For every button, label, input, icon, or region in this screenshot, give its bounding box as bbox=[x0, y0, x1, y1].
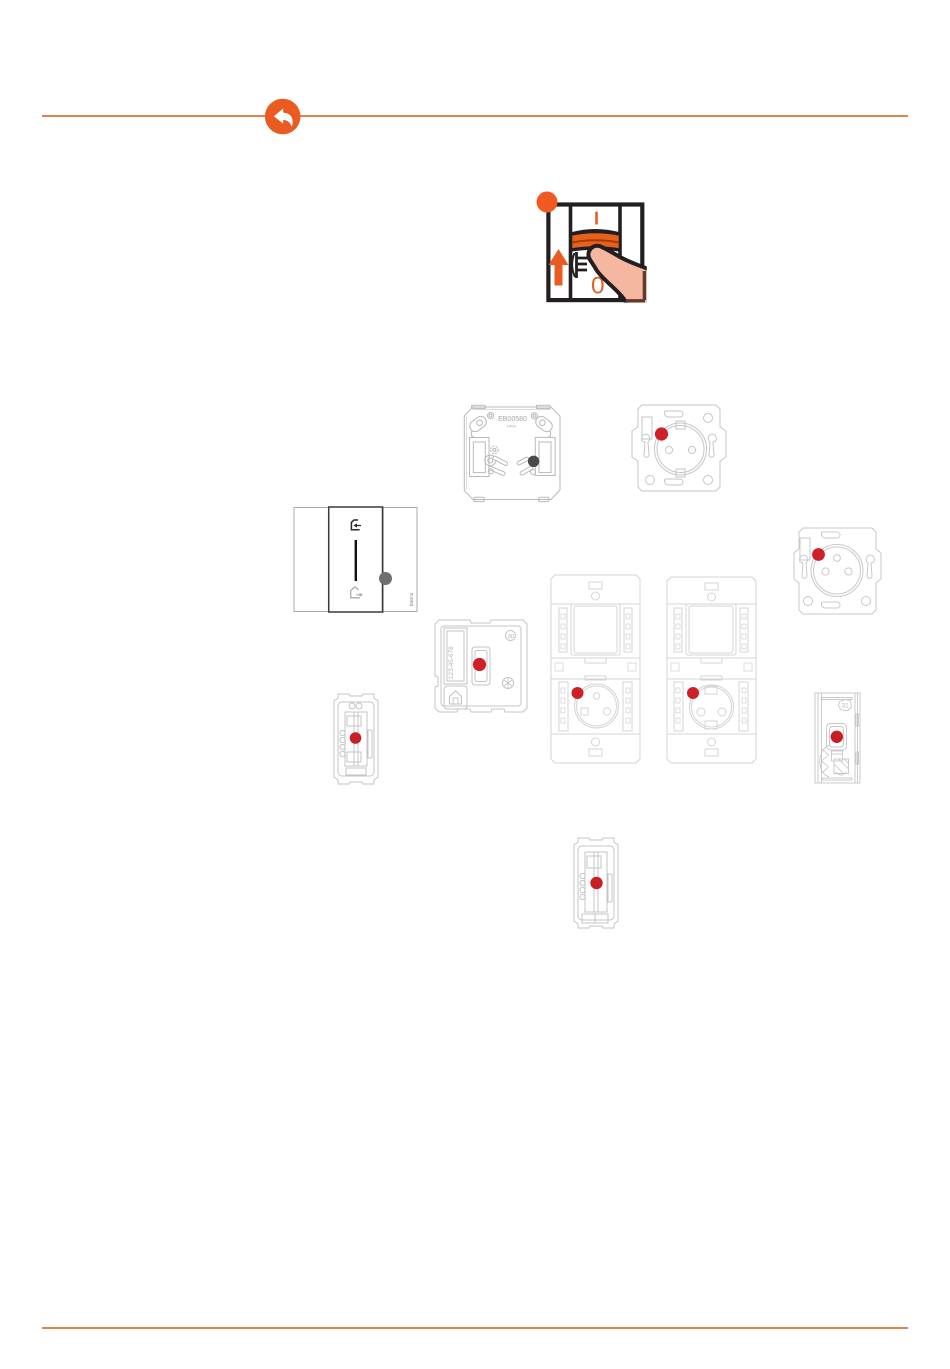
svg-text:HP8<: HP8< bbox=[507, 424, 518, 429]
svg-text:30: 30 bbox=[508, 634, 514, 640]
svg-text:31: 31 bbox=[841, 703, 849, 710]
svg-text:EB00580: EB00580 bbox=[498, 416, 527, 423]
svg-text:123-45-678: 123-45-678 bbox=[448, 646, 455, 679]
svg-text:bticino: bticino bbox=[409, 592, 414, 606]
